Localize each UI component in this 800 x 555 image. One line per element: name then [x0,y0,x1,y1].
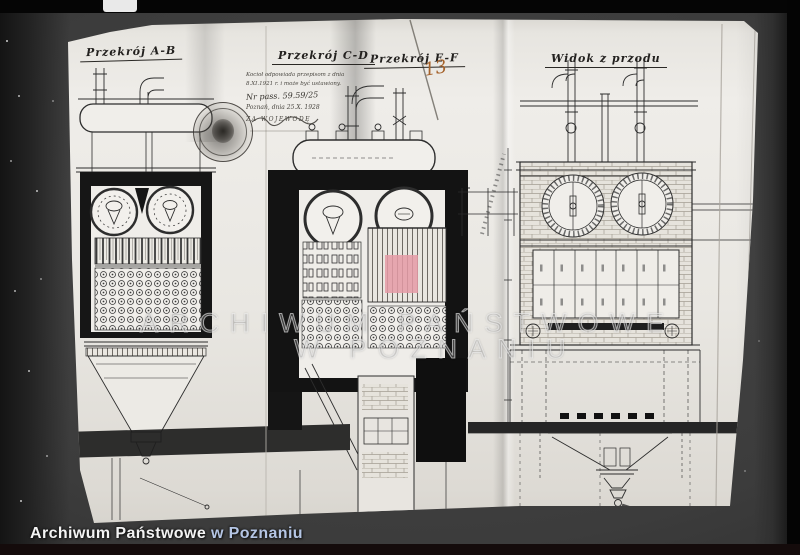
film-edge-notch [103,0,137,12]
page-number: 13 [422,56,448,81]
archive-caption-city: w Poznaniu [211,525,303,542]
archive-caption: Archiwum Państwowe w Poznaniu [30,525,303,543]
pink-highlight [385,255,418,293]
section-label-przekroj-a-b: Przekrój A-B [80,44,183,63]
section-label-przekroj-c-d: Przekrój C-D [272,49,375,65]
film-grain-specks [6,40,8,42]
photo-border-right [787,0,800,555]
archive-watermark-line2: W POZNANIU [294,334,577,365]
section-label-widok-z-przodu: Widok z przodu [545,52,667,68]
approval-note: Kocioł odpowiada przepisom z dnia 8.XI.1… [246,71,346,125]
seal-eagle-emblem [212,119,234,143]
approval-note-number: Nr pass. 59.59/25 [246,88,346,104]
approval-note-date: Poznań, dnia 25.X. 1928 [246,103,346,113]
photo-border-bottom [0,544,800,555]
archival-photo: Przekrój A-B Przekrój C-D Przekrój E-F W… [0,0,800,555]
film-left-margin [0,13,70,545]
official-seal-stamp [193,102,253,162]
blueprint-paper: Przekrój A-B Przekrój C-D Przekrój E-F W… [0,0,800,555]
approval-note-authority: ZA WOJEWODĘ [246,115,346,125]
technical-drawing [0,0,800,555]
approval-note-line2: 8.XI.1921 r. i może być ustawiony. [246,80,346,89]
archive-caption-name: Archiwum Państwowe [30,525,206,542]
section-label-przekroj-e-f: Przekrój E-F [364,51,465,69]
approval-note-line1: Kocioł odpowiada przepisom z dnia [246,71,346,80]
